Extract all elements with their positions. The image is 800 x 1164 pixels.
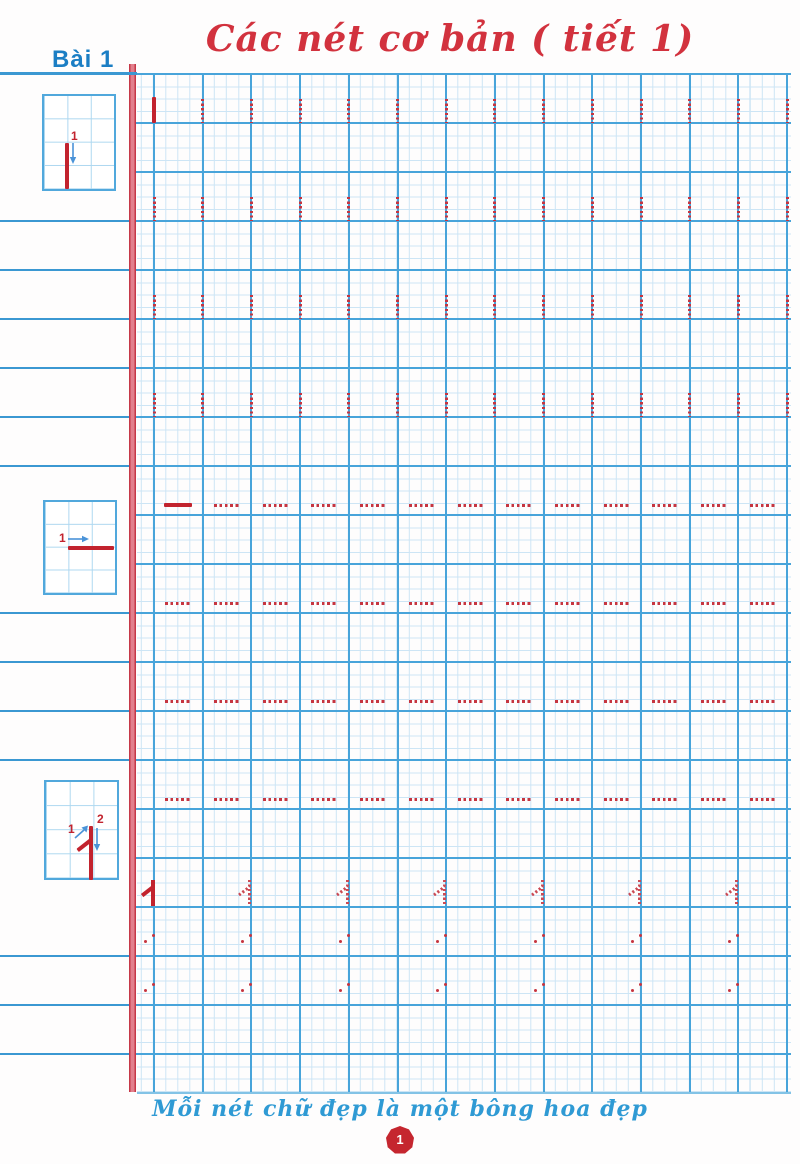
margin-rule-line [0,1004,130,1007]
margin-rule-line [0,269,130,272]
grid-line-horizontal [130,906,791,908]
vertical-stroke-trace [347,393,350,417]
numeral-one-trace [528,879,546,907]
grid-line-vertical [445,74,447,1092]
horizontal-stroke-trace [604,504,630,507]
vertical-stroke-trace [153,197,156,221]
vertical-stroke-trace [250,99,253,123]
horizontal-stroke-trace [555,602,581,605]
vertical-stroke-trace [591,99,594,123]
diagonal-arrow-icon [73,824,93,842]
trace-start-dot [339,989,342,992]
horizontal-stroke-trace [604,700,630,703]
grid-line-vertical [153,74,155,1092]
vertical-stroke-trace [201,99,204,123]
numeral-one-sample [138,879,156,907]
trace-start-dot [631,989,634,992]
vertical-stroke-trace [786,99,789,123]
grid-line-vertical [250,74,252,1092]
horizontal-stroke-trace [652,504,678,507]
vertical-stroke-trace [201,393,204,417]
instruction-box-numeral-one: 1 2 [44,780,119,880]
horizontal-stroke-trace [409,798,435,801]
vertical-stroke-trace [299,197,302,221]
numeral-one-trace [430,879,448,907]
grid-line-horizontal [130,416,791,418]
grid-line-horizontal [130,73,791,75]
vertical-stroke-trace [347,295,350,319]
vertical-stroke-trace [591,393,594,417]
horizontal-stroke-trace [165,700,191,703]
vertical-stroke-trace [347,99,350,123]
vertical-stroke-trace [688,295,691,319]
horizontal-stroke-trace [311,700,337,703]
horizontal-stroke-trace [165,602,191,605]
grid-line-horizontal [130,465,791,467]
horizontal-stroke-trace [458,700,484,703]
horizontal-stroke-sample [164,503,192,507]
vertical-stroke-trace [688,393,691,417]
vertical-stroke-trace [786,197,789,221]
horizontal-stroke-trace [506,504,532,507]
numeral-one-trace [625,879,643,907]
horizontal-stroke-trace [604,798,630,801]
grid-line-vertical [397,74,399,1092]
footer-quote: Mỗi nét chữ đẹp là một bông hoa đẹp [0,1096,800,1122]
numeral-one-trace [333,879,351,907]
trace-start-dot [347,983,350,986]
vertical-stroke-trace [250,393,253,417]
vertical-stroke-trace [688,197,691,221]
step-number-label: 1 [59,533,66,543]
grid-line-vertical [786,74,788,1092]
grid-line-horizontal [130,710,791,712]
margin-rule-line [0,661,130,664]
margin-rule-line [0,1053,130,1056]
horizontal-stroke-trace [458,504,484,507]
margin-rule-line [0,955,130,958]
horizontal-stroke-trace [214,700,240,703]
horizontal-stroke-trace [409,504,435,507]
vertical-stroke-trace [542,99,545,123]
page-title: Các nét cơ bản ( tiết 1) [110,18,790,60]
vertical-stroke-trace [250,197,253,221]
vertical-stroke-trace [445,295,448,319]
vertical-stroke-trace [591,295,594,319]
vertical-stroke-trace [347,197,350,221]
horizontal-stroke-trace [409,602,435,605]
vertical-stroke-trace [153,393,156,417]
vertical-stroke-trace [396,393,399,417]
grid-line-horizontal [130,955,791,957]
vertical-stroke-trace [493,393,496,417]
down-arrow-icon [92,827,102,855]
vertical-stroke-trace [201,295,204,319]
grid-line-horizontal [130,171,791,173]
horizontal-stroke-trace [360,504,386,507]
vertical-stroke-trace [688,99,691,123]
vertical-stroke-trace [737,197,740,221]
lesson-label: Bài 1 [52,46,114,74]
margin-rule-line [0,318,130,321]
down-arrow-icon [68,142,78,168]
vertical-stroke-trace [445,99,448,123]
vertical-stroke-sample [152,97,156,123]
trace-start-dot [542,983,545,986]
horizontal-stroke-trace [652,700,678,703]
margin-rule-line [0,710,130,713]
vertical-stroke-trace [786,295,789,319]
right-arrow-icon [67,534,93,544]
grid-overlay [0,0,800,1164]
horizontal-stroke-trace [165,798,191,801]
trace-start-dot [542,934,545,937]
trace-start-dot [241,989,244,992]
grid-line-horizontal [130,808,791,810]
vertical-stroke-trace [640,99,643,123]
grid-line-horizontal [130,1053,791,1055]
trace-start-dot [144,989,147,992]
grid-line-horizontal [130,514,791,516]
grid-line-horizontal [130,269,791,271]
trace-start-dot [639,934,642,937]
margin-rule-line [0,612,130,615]
horizontal-stroke-trace [506,700,532,703]
horizontal-stroke-trace [555,700,581,703]
grid-line-horizontal [130,661,791,663]
horizontal-stroke-trace [750,798,776,801]
trace-start-dot [152,983,155,986]
horizontal-stroke-trace [311,798,337,801]
step-number-label: 1 [71,131,78,141]
red-margin-line [129,64,136,1092]
horizontal-stroke-trace [263,504,289,507]
margin-rule-line [0,416,130,419]
margin-rule-line [0,465,130,468]
grid-line-vertical [202,74,204,1092]
trace-start-dot [339,940,342,943]
grid-line-horizontal [130,220,791,222]
horizontal-stroke-trace [750,602,776,605]
vertical-stroke-trace [542,393,545,417]
horizontal-stroke-trace [555,798,581,801]
trace-start-dot [728,989,731,992]
horizontal-stroke-trace [360,602,386,605]
margin-rule-line [0,220,130,223]
grid-line-vertical [689,74,691,1092]
horizontal-stroke-trace [214,504,240,507]
horizontal-stroke-trace [701,504,727,507]
trace-start-dot [436,940,439,943]
vertical-stroke-trace [493,99,496,123]
grid-line-horizontal [130,759,791,761]
horizontal-stroke-trace [458,798,484,801]
trace-start-dot [347,934,350,937]
trace-start-dot [534,989,537,992]
horizontal-stroke-trace [360,798,386,801]
horizontal-stroke-trace [701,798,727,801]
vertical-stroke-trace [737,99,740,123]
vertical-stroke-trace [493,295,496,319]
vertical-stroke-trace [396,197,399,221]
vertical-stroke-trace [737,295,740,319]
sample-horizontal-stroke [68,546,114,550]
horizontal-stroke-trace [652,602,678,605]
horizontal-stroke-trace [458,602,484,605]
step-number-label: 2 [97,814,104,824]
horizontal-stroke-trace [750,700,776,703]
horizontal-stroke-trace [214,602,240,605]
horizontal-stroke-trace [360,700,386,703]
vertical-stroke-trace [640,295,643,319]
vertical-stroke-trace [445,393,448,417]
grid-line-horizontal [130,318,791,320]
vertical-stroke-trace [542,197,545,221]
vertical-stroke-trace [591,197,594,221]
grid-line-horizontal [130,612,791,614]
horizontal-stroke-trace [701,700,727,703]
trace-start-dot [639,983,642,986]
margin-rule-line [0,759,130,762]
grid-line-vertical [543,74,545,1092]
vertical-stroke-trace [153,295,156,319]
trace-start-dot [241,940,244,943]
grid-line-horizontal [130,367,791,369]
trace-start-dot [631,940,634,943]
grid-line-horizontal [130,1004,791,1006]
numeral-one-trace [235,879,253,907]
vertical-stroke-trace [445,197,448,221]
horizontal-stroke-trace [604,602,630,605]
grid-line-vertical [299,74,301,1092]
vertical-stroke-trace [299,295,302,319]
vertical-stroke-trace [737,393,740,417]
vertical-stroke-trace [201,197,204,221]
horizontal-stroke-trace [311,602,337,605]
trace-start-dot [534,940,537,943]
margin-rule-line [0,367,130,370]
grid-line-vertical [348,74,350,1092]
grid-line-vertical [737,74,739,1092]
horizontal-stroke-trace [506,602,532,605]
horizontal-stroke-trace [652,798,678,801]
vertical-stroke-trace [396,99,399,123]
instruction-box-vertical-stroke: 1 [42,94,116,191]
grid-line-horizontal [130,857,791,859]
trace-start-dot [436,989,439,992]
horizontal-stroke-trace [263,700,289,703]
trace-start-dot [152,934,155,937]
instruction-box-horizontal-stroke: 1 [43,500,117,595]
vertical-stroke-trace [640,393,643,417]
vertical-stroke-trace [640,197,643,221]
grid-line-horizontal [130,122,791,124]
vertical-stroke-trace [250,295,253,319]
grid-line-vertical [640,74,642,1092]
grid-line-vertical [494,74,496,1092]
numeral-one-trace [722,879,740,907]
horizontal-stroke-trace [263,798,289,801]
vertical-stroke-trace [493,197,496,221]
grid-line-horizontal [130,563,791,565]
horizontal-stroke-trace [409,700,435,703]
vertical-stroke-trace [299,99,302,123]
horizontal-stroke-trace [750,504,776,507]
vertical-stroke-trace [542,295,545,319]
horizontal-stroke-trace [506,798,532,801]
trace-start-dot [144,940,147,943]
horizontal-stroke-trace [311,504,337,507]
horizontal-stroke-trace [555,504,581,507]
horizontal-stroke-trace [214,798,240,801]
vertical-stroke-trace [396,295,399,319]
trace-start-dot [728,940,731,943]
horizontal-stroke-trace [263,602,289,605]
vertical-stroke-trace [786,393,789,417]
horizontal-stroke-trace [701,602,727,605]
vertical-stroke-trace [299,393,302,417]
grid-line-vertical [591,74,593,1092]
